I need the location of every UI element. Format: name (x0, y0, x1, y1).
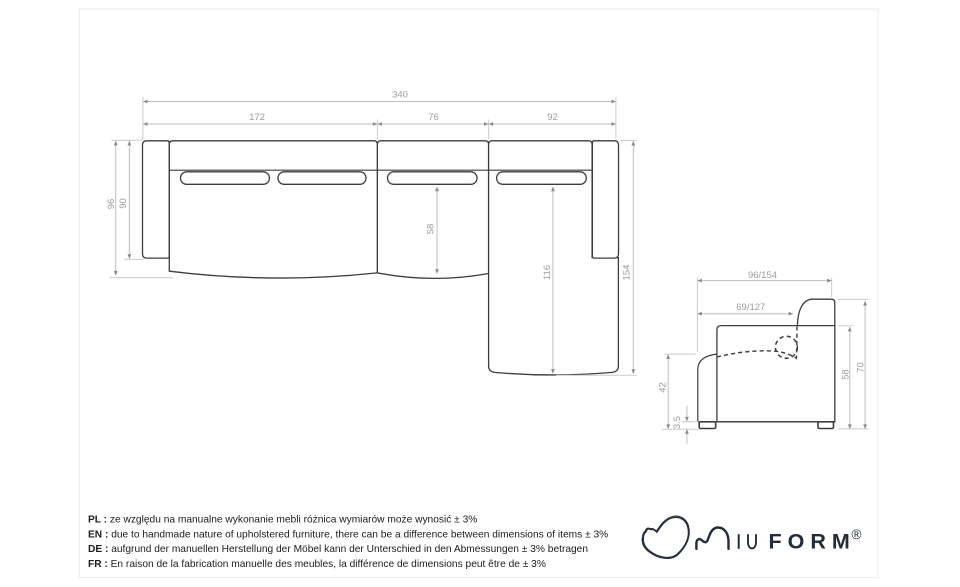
svg-text:172: 172 (249, 112, 265, 123)
svg-text:69/127: 69/127 (736, 302, 765, 313)
svg-text:76: 76 (428, 112, 439, 123)
svg-text:EN : due to handmade nature of: EN : due to handmade nature of upholster… (88, 529, 608, 540)
svg-text:96: 96 (106, 199, 117, 210)
svg-text:PL : ze względu na manualne wy: PL : ze względu na manualne wykonanie me… (88, 515, 477, 526)
svg-text:58: 58 (841, 369, 852, 380)
svg-text:FR : En raison de la fabricati: FR : En raison de la fabrication manuell… (88, 559, 546, 570)
svg-text:90: 90 (118, 198, 129, 209)
svg-text:96/154: 96/154 (748, 270, 777, 281)
svg-text:DE : aufgrund der manuellen He: DE : aufgrund der manuellen Herstellung … (88, 544, 588, 555)
svg-text:70: 70 (855, 362, 866, 373)
svg-text:92: 92 (547, 112, 558, 123)
svg-text:®: ® (852, 527, 862, 542)
svg-text:3.5: 3.5 (672, 416, 683, 429)
svg-text:116: 116 (542, 265, 553, 280)
svg-text:340: 340 (392, 90, 408, 101)
svg-text:FORM: FORM (769, 529, 856, 553)
svg-text:42: 42 (657, 382, 668, 393)
svg-text:58: 58 (426, 224, 437, 235)
svg-text:154: 154 (622, 265, 633, 281)
